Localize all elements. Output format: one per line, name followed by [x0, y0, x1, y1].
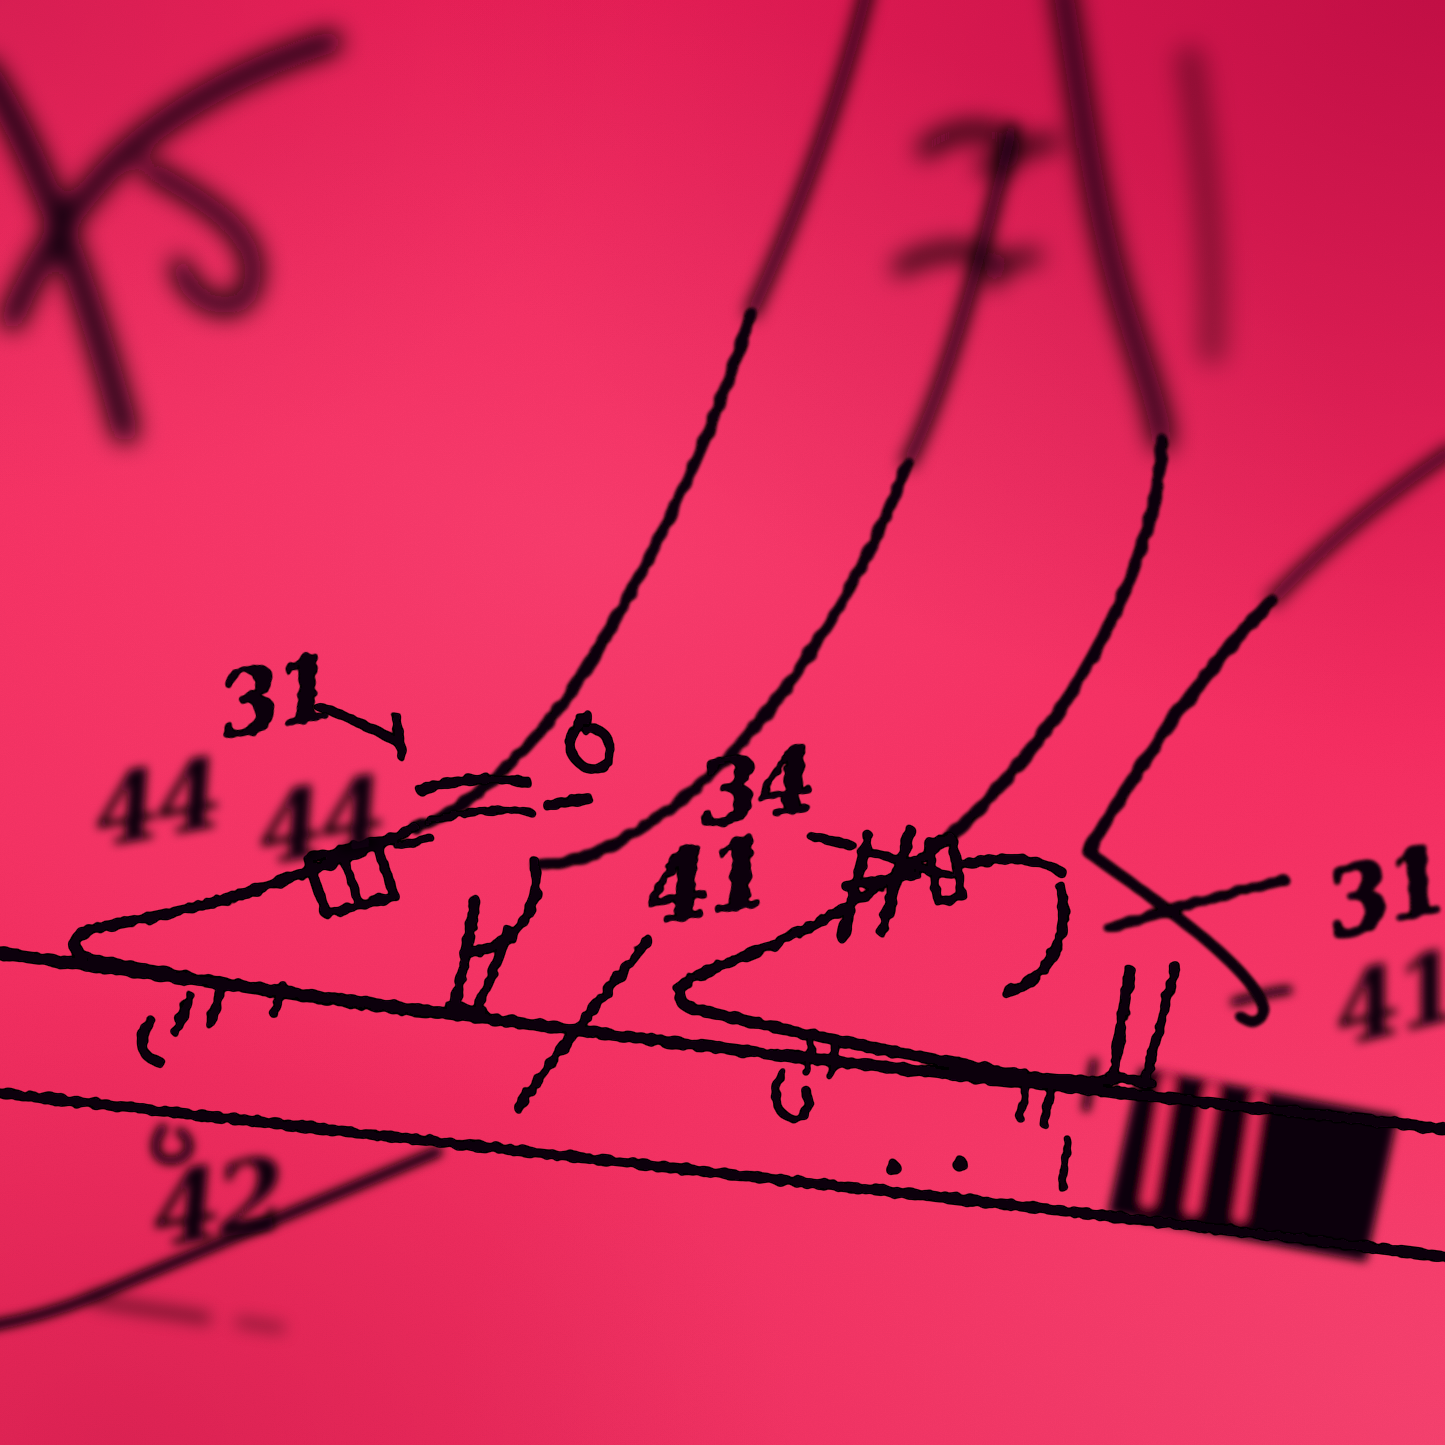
pink-patent-print-photo: 3144443441423141: [0, 0, 1445, 1445]
paper-grain-overlay: [0, 0, 1445, 1445]
patent-drawing-canvas: 3144443441423141: [0, 0, 1445, 1445]
